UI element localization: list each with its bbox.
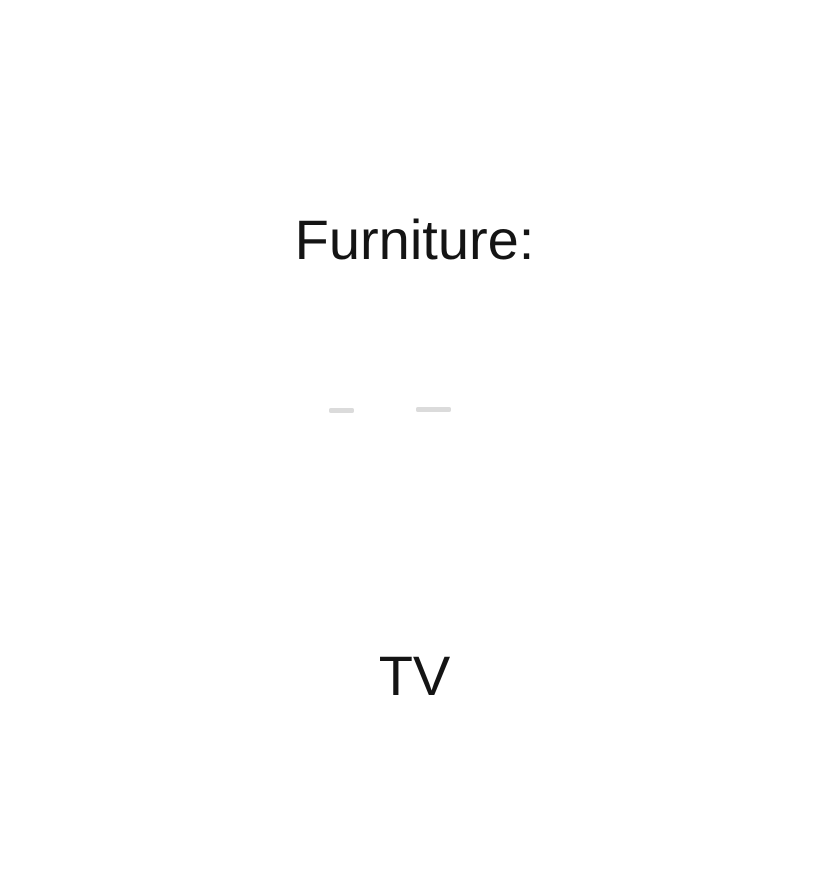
list-title: Furniture:	[0, 204, 829, 277]
furniture-list-page: Furniture: TV AC 1/2 PK Dispenser Kulkas…	[0, 0, 829, 894]
furniture-list: Furniture: TV AC 1/2 PK Dispenser Kulkas…	[0, 58, 829, 894]
list-items: TV AC 1/2 PK Dispenser Kulkas Bed 140x20…	[0, 426, 829, 894]
list-item: TV	[0, 640, 829, 713]
watermark-fragment-icon	[329, 408, 354, 413]
watermark-fragment-icon	[416, 407, 451, 412]
